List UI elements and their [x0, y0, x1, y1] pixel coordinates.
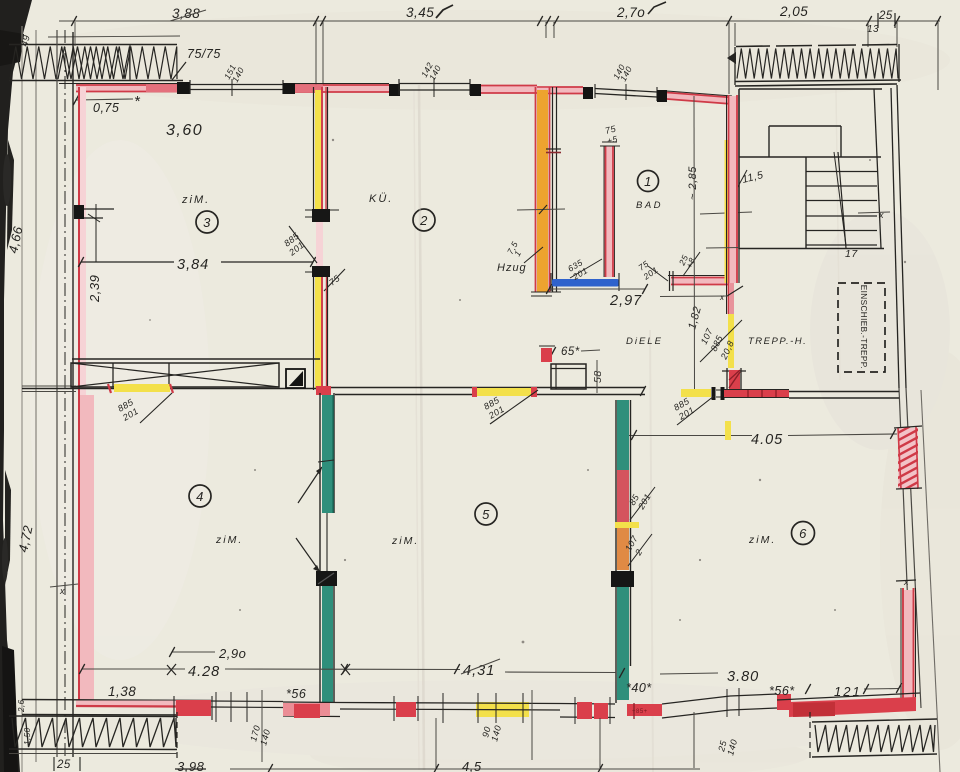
svg-text:2,05: 2,05: [779, 4, 808, 19]
svg-text:17: 17: [845, 248, 858, 260]
svg-text:1,38: 1,38: [108, 684, 136, 699]
svg-text:13: 13: [867, 24, 879, 35]
svg-text:25: 25: [878, 10, 893, 22]
svg-text:KÜ.: KÜ.: [369, 193, 393, 205]
svg-text:DiELE: DiELE: [626, 336, 663, 347]
svg-text:58: 58: [592, 370, 604, 383]
svg-text:1,50: 1,50: [23, 727, 32, 745]
svg-text:ziM.: ziM.: [181, 194, 210, 206]
svg-text:1: 1: [644, 174, 652, 189]
svg-text:4.05: 4.05: [751, 432, 783, 448]
svg-text:ziM.: ziM.: [215, 534, 243, 546]
svg-text:*56*: *56*: [769, 684, 795, 698]
svg-text:x: x: [59, 586, 65, 596]
svg-text:3.80: 3.80: [727, 669, 759, 685]
svg-text:65*: 65*: [561, 346, 580, 358]
svg-text:3,84: 3,84: [177, 257, 209, 273]
svg-text:x: x: [878, 210, 884, 220]
svg-text:5: 5: [482, 507, 490, 522]
svg-text:x: x: [719, 293, 725, 302]
svg-text:121: 121: [834, 684, 862, 699]
svg-text:2,9o: 2,9o: [218, 646, 246, 661]
svg-text:25: 25: [56, 759, 71, 771]
svg-text:2,6: 2,6: [17, 699, 26, 713]
svg-text:4.28: 4.28: [188, 664, 220, 680]
svg-text:*40*: *40*: [626, 681, 652, 695]
svg-text:2,7o: 2,7o: [616, 5, 645, 20]
svg-text:3,60: 3,60: [166, 122, 203, 139]
svg-text:*: *: [134, 93, 141, 110]
svg-text:3,45: 3,45: [406, 5, 434, 20]
svg-text:2: 2: [419, 213, 428, 228]
svg-text:+85+: +85+: [632, 709, 648, 715]
svg-text:*56: *56: [286, 687, 306, 701]
svg-text:~ 2,85: ~ 2,85: [687, 166, 699, 200]
svg-text:4: 4: [196, 489, 204, 504]
svg-text:4,5: 4,5: [462, 759, 482, 772]
svg-text:0,75: 0,75: [93, 101, 119, 115]
svg-text:2,39: 2,39: [87, 275, 102, 303]
svg-text:75/75: 75/75: [187, 47, 221, 61]
svg-text:3: 3: [203, 215, 211, 230]
svg-text:ziM.: ziM.: [748, 534, 776, 546]
svg-text:Hzug: Hzug: [497, 262, 527, 274]
svg-text:2,97: 2,97: [609, 293, 642, 309]
svg-text:BAD: BAD: [636, 200, 663, 211]
svg-text:6: 6: [799, 526, 807, 541]
svg-text:TREPP.-H.: TREPP.-H.: [748, 336, 807, 347]
svg-text:ziM.: ziM.: [391, 535, 419, 547]
svg-text:x: x: [903, 577, 909, 587]
svg-text:3,98: 3,98: [177, 759, 205, 772]
svg-text:EINSCHIEB.-TREPP.: EINSCHIEB.-TREPP.: [859, 285, 868, 369]
